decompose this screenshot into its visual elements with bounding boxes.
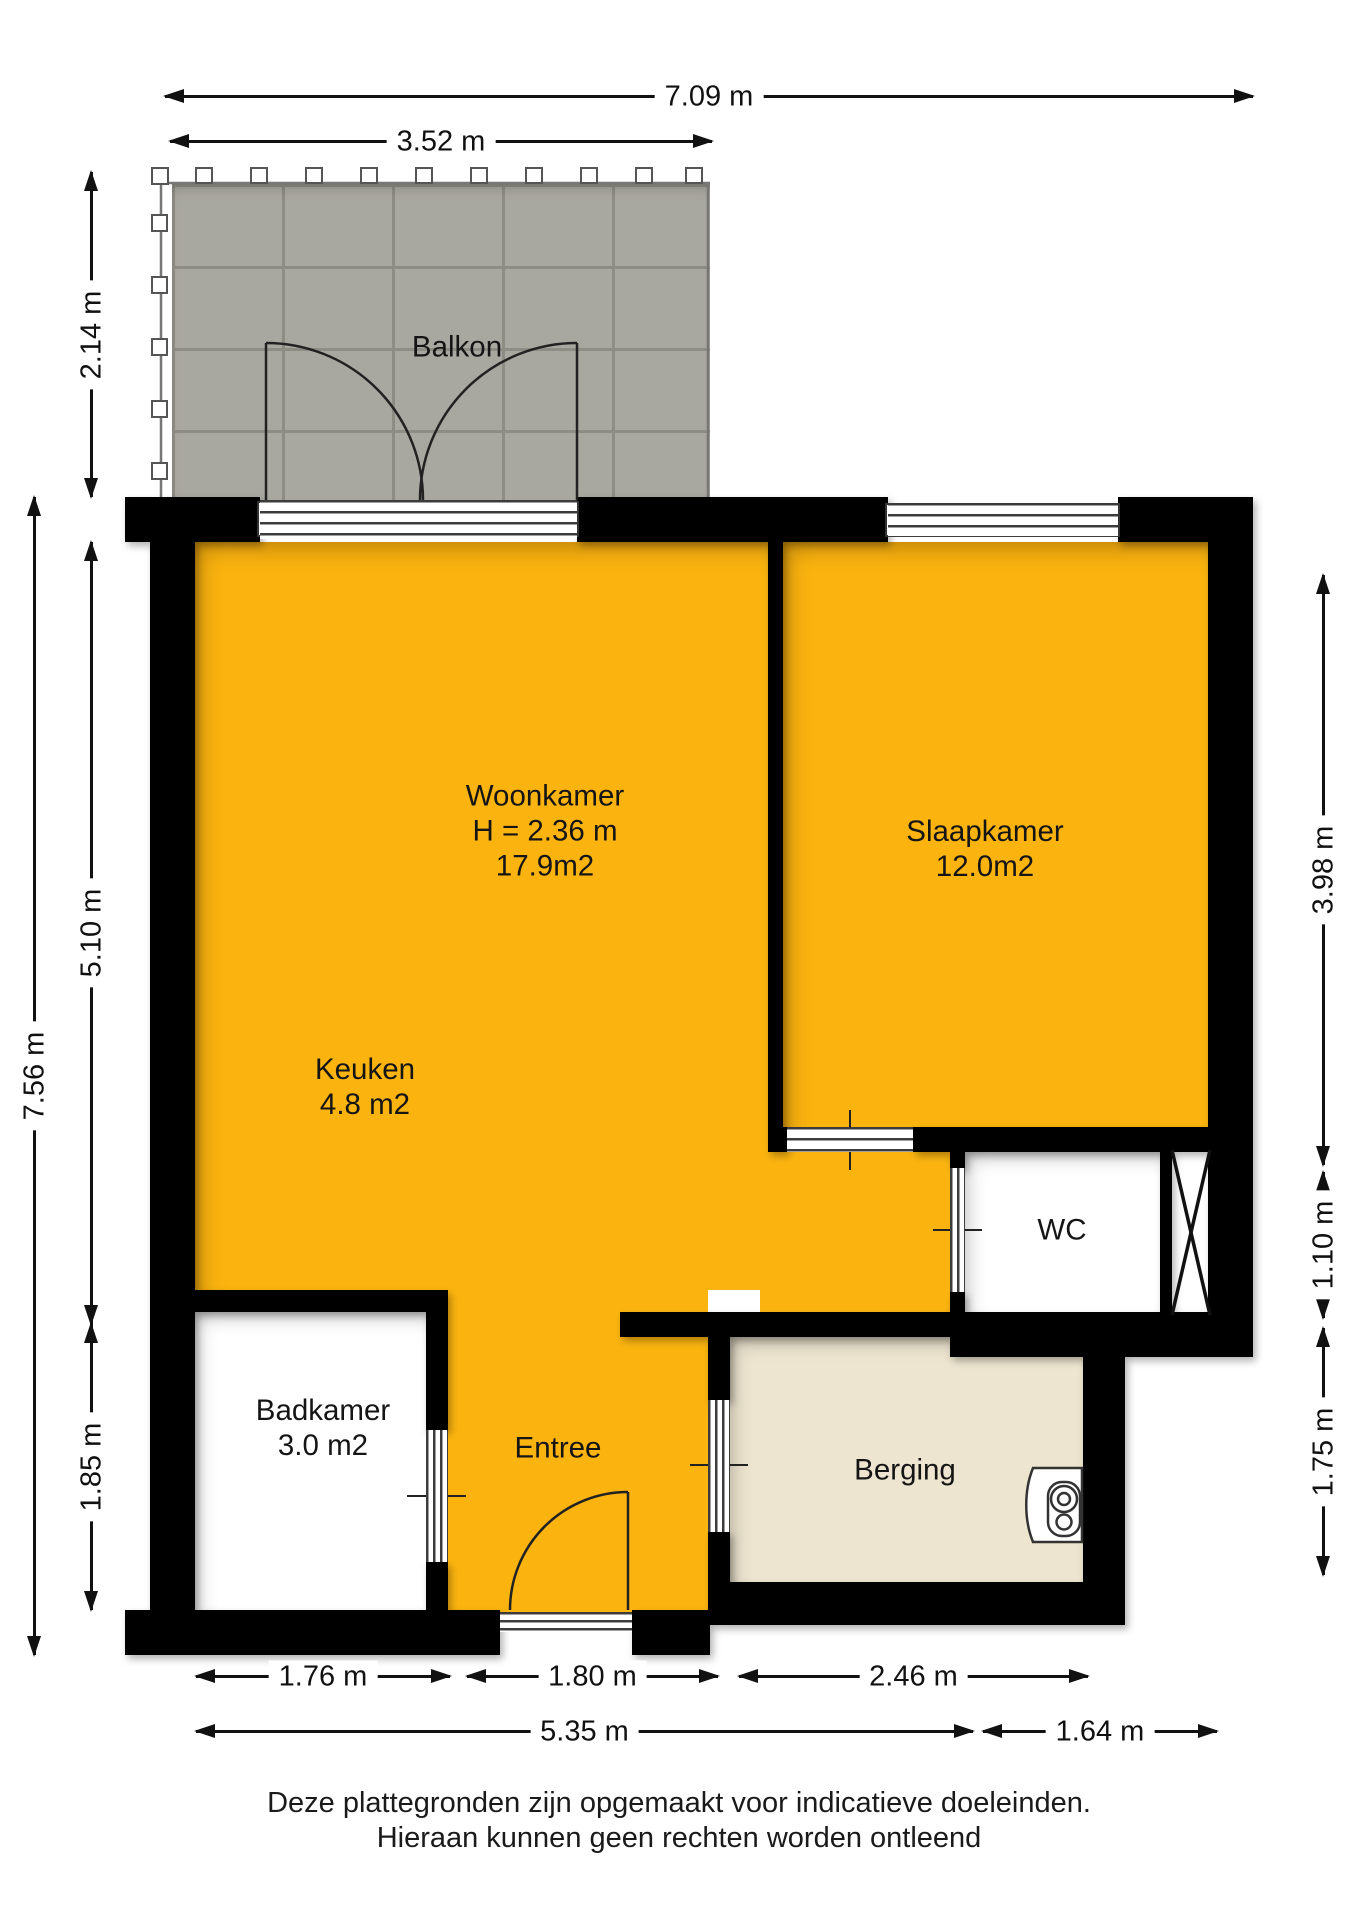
dim-left-bathroom: 1.85 m bbox=[90, 1324, 93, 1610]
arrowhead bbox=[168, 134, 189, 148]
arrowhead bbox=[1198, 1724, 1219, 1738]
dim-left-total: 7.56 m bbox=[33, 497, 36, 1655]
wc-door-band bbox=[950, 1168, 965, 1292]
slaapkamer-door-band bbox=[787, 1127, 913, 1152]
slaapkamer-window bbox=[888, 503, 1118, 537]
arrowhead bbox=[84, 540, 98, 561]
dim-bottom-entry: 1.80 m bbox=[467, 1675, 718, 1678]
disclaimer-text: Deze plattegronden zijn opgemaakt voor i… bbox=[0, 1786, 1358, 1856]
label-balkon: Balkon bbox=[412, 330, 502, 365]
front-door-threshold bbox=[500, 1612, 632, 1632]
dim-left-balcony: 2.14 m bbox=[90, 172, 93, 497]
arrowhead bbox=[1316, 1146, 1330, 1167]
walls bbox=[125, 497, 1253, 1655]
dim-top-balcony: 3.52 m bbox=[170, 140, 712, 143]
arrowhead bbox=[699, 1669, 720, 1683]
arrowhead bbox=[1069, 1669, 1090, 1683]
arrowhead bbox=[84, 170, 98, 191]
label-entree: Entree bbox=[515, 1431, 602, 1466]
arrowhead bbox=[27, 1636, 41, 1657]
label-wc: WC bbox=[1037, 1213, 1086, 1248]
balcony-door-threshold bbox=[260, 500, 577, 539]
berging-door-band bbox=[708, 1400, 730, 1532]
arrowhead bbox=[1316, 573, 1330, 594]
label-berging: Berging bbox=[854, 1453, 956, 1488]
dim-left-livingroom: 5.10 m bbox=[90, 542, 93, 1324]
arrowhead bbox=[1234, 89, 1255, 103]
arrowhead bbox=[981, 1724, 1002, 1738]
arrowhead bbox=[1316, 1170, 1330, 1191]
dim-bottom-right-total: 1.64 m bbox=[983, 1730, 1217, 1733]
shaft-x-icon bbox=[1172, 1150, 1210, 1315]
dim-right-bedroom: 3.98 m bbox=[1322, 575, 1325, 1165]
label-slaapkamer: Slaapkamer 12.0m2 bbox=[906, 814, 1063, 884]
boiler-icon bbox=[1026, 1468, 1082, 1542]
label-keuken: Keuken 4.8 m2 bbox=[315, 1052, 415, 1122]
arrowhead bbox=[954, 1724, 975, 1738]
dim-bottom-left-total: 5.35 m bbox=[196, 1730, 973, 1733]
dim-bottom-bathroom: 1.76 m bbox=[196, 1675, 450, 1678]
walls-and-symbols bbox=[0, 0, 1358, 1920]
arrowhead bbox=[465, 1669, 486, 1683]
arrowhead bbox=[1316, 1326, 1330, 1347]
arrowhead bbox=[1316, 1556, 1330, 1577]
label-woonkamer: Woonkamer H = 2.36 m 17.9m2 bbox=[466, 779, 625, 884]
dim-right-storage: 1.75 m bbox=[1322, 1328, 1325, 1575]
door-ticks bbox=[407, 1110, 982, 1496]
floorplan-canvas: Balkon Woonkamer H = 2.36 m 17.9m2 Slaap… bbox=[0, 0, 1358, 1920]
arrowhead bbox=[737, 1669, 758, 1683]
dim-top-total: 7.09 m bbox=[165, 95, 1253, 98]
label-badkamer: Badkamer 3.0 m2 bbox=[256, 1393, 390, 1463]
arrowhead bbox=[84, 1322, 98, 1343]
arrowhead bbox=[163, 89, 184, 103]
arrowhead bbox=[693, 134, 714, 148]
arrowhead bbox=[27, 495, 41, 516]
arrowhead bbox=[194, 1669, 215, 1683]
dim-bottom-storage: 2.46 m bbox=[739, 1675, 1088, 1678]
arrowhead bbox=[84, 478, 98, 499]
arrowhead bbox=[84, 1591, 98, 1612]
badkamer-door-band bbox=[426, 1430, 448, 1562]
arrowhead bbox=[1316, 1299, 1330, 1320]
arrowhead bbox=[431, 1669, 452, 1683]
dim-right-wc: 1.10 m bbox=[1322, 1172, 1325, 1318]
arrowhead bbox=[194, 1724, 215, 1738]
